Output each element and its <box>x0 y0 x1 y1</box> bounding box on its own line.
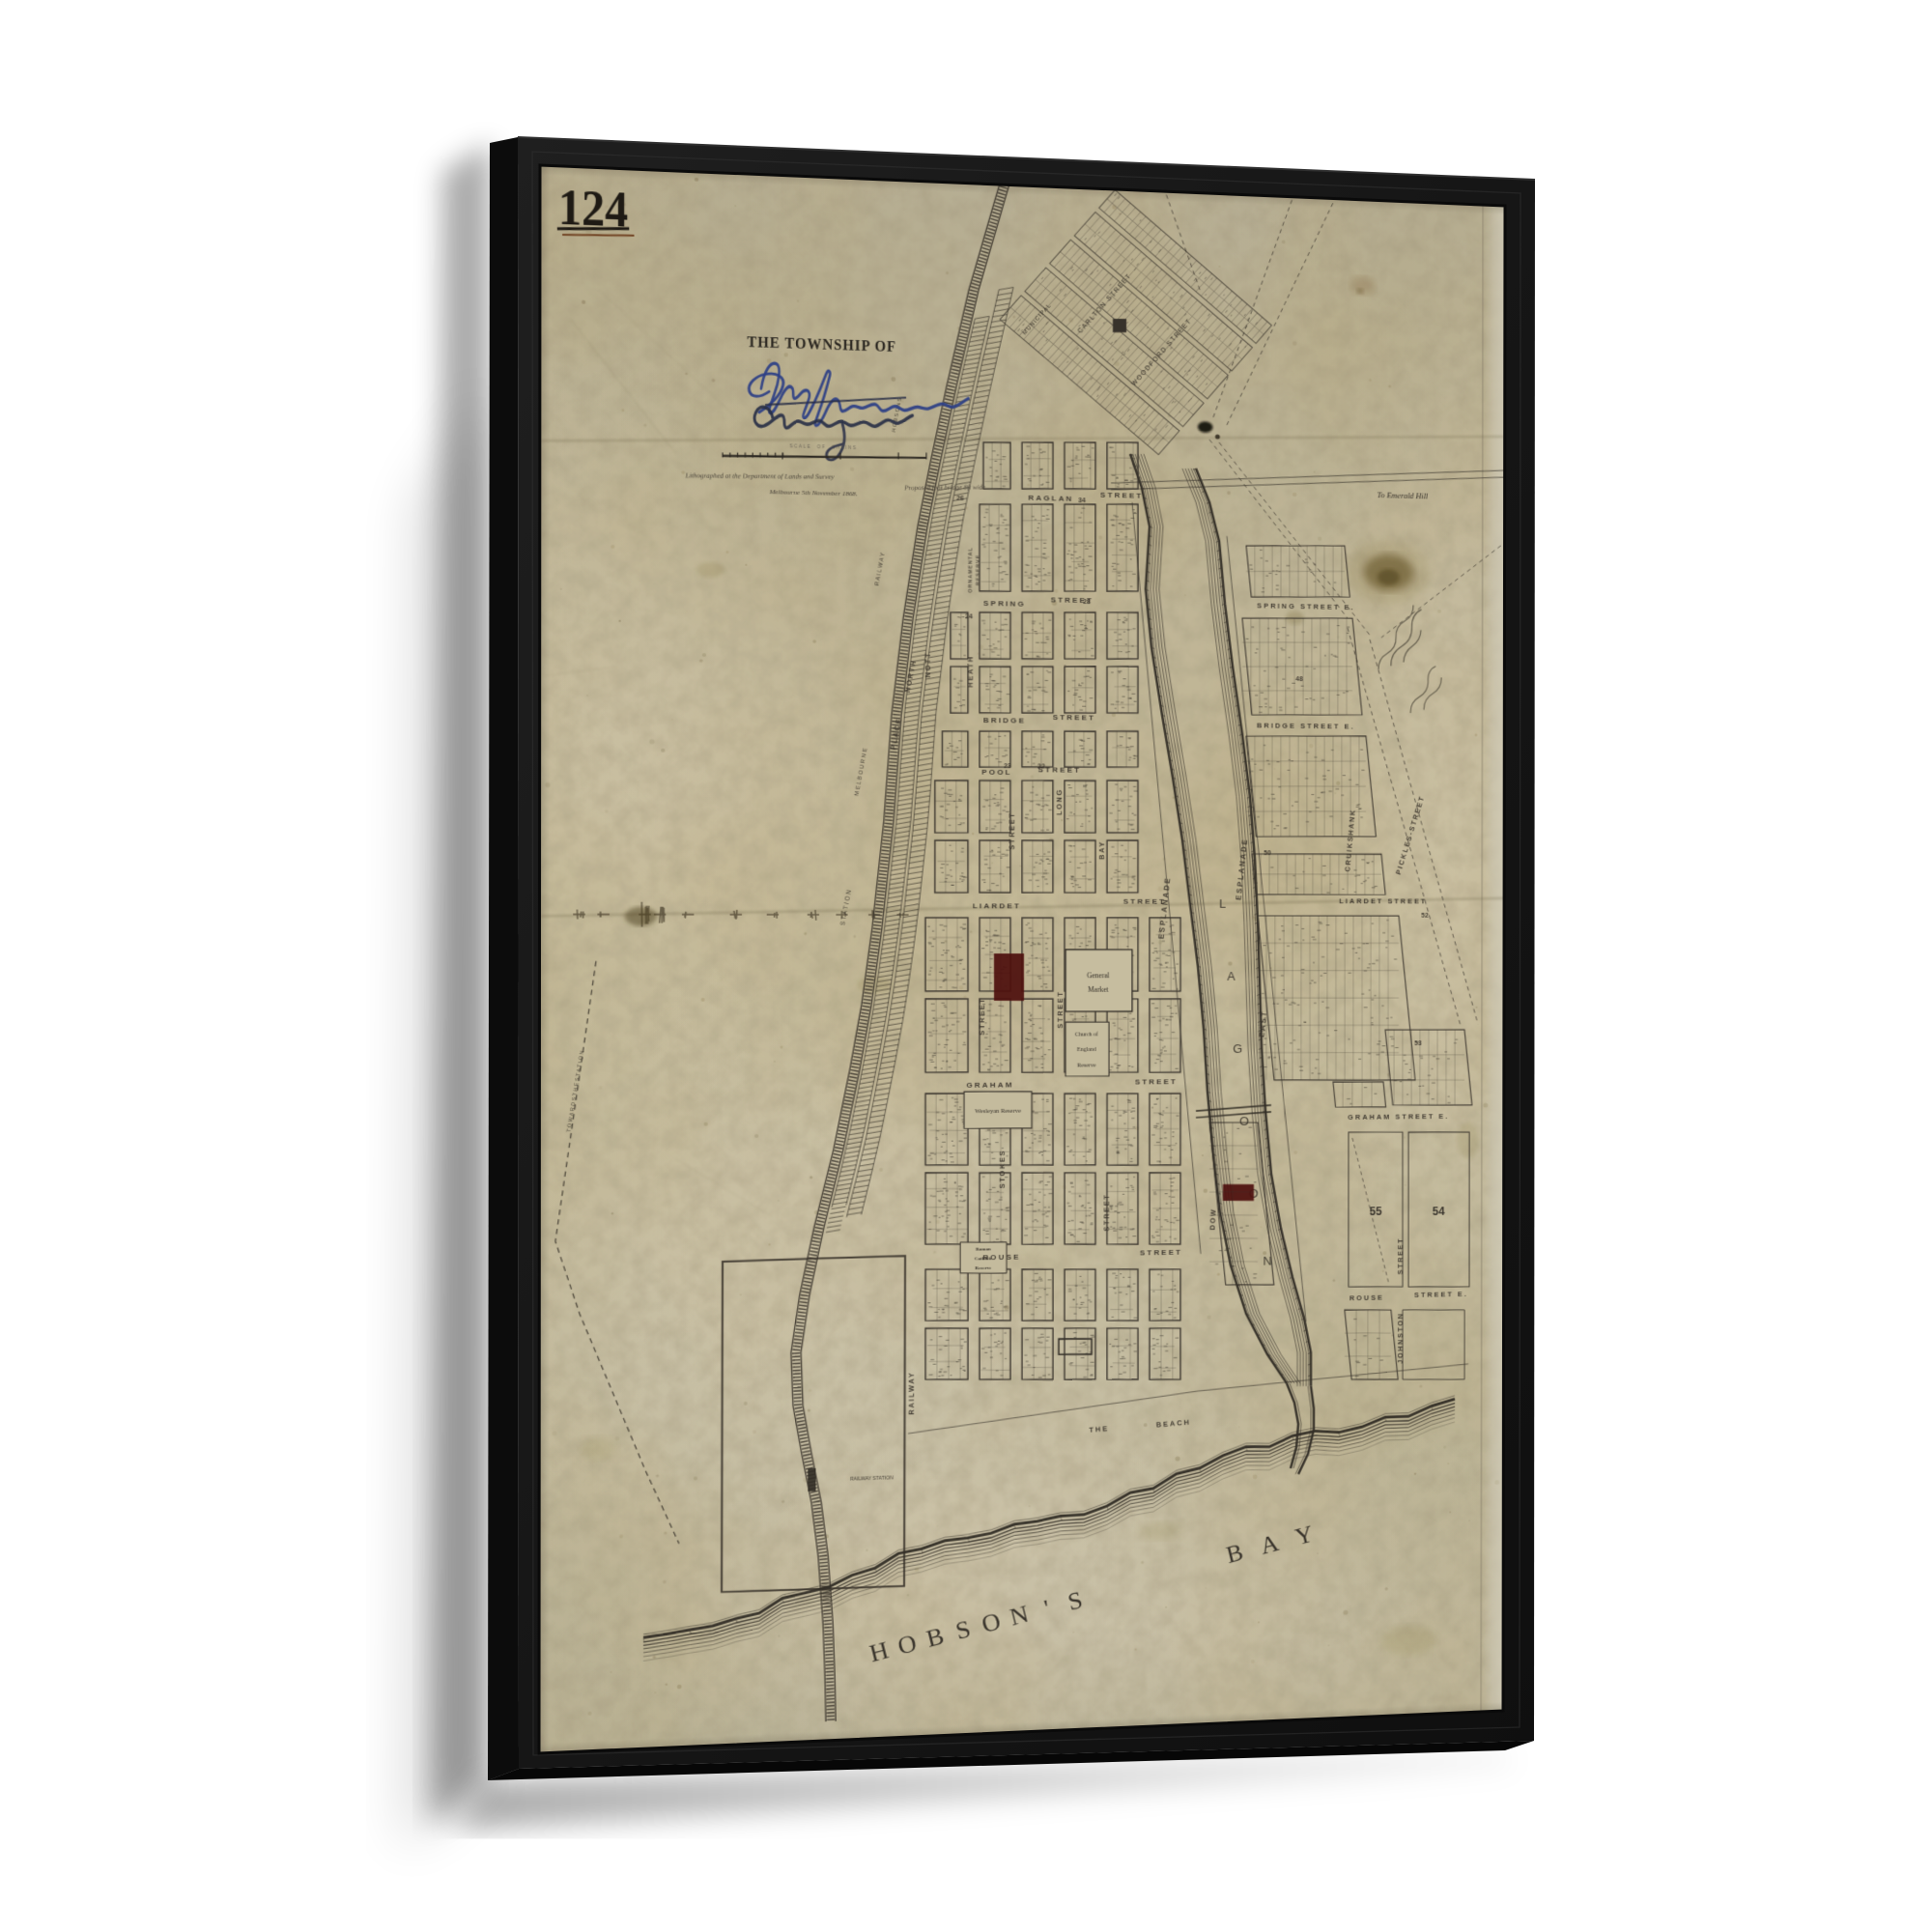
svg-text:DOW: DOW <box>1208 1207 1218 1230</box>
svg-text:53: 53 <box>1414 1039 1421 1047</box>
svg-text:RAILWAY: RAILWAY <box>907 1371 916 1414</box>
svg-text:STREET: STREET <box>1053 712 1095 722</box>
svg-text:Lithographed at the Department: Lithographed at the Department of Lands … <box>684 471 835 481</box>
svg-text:BRIDGE STREET E.: BRIDGE STREET E. <box>1257 722 1355 730</box>
svg-text:Reserve: Reserve <box>1077 1063 1095 1069</box>
svg-text:Roman: Roman <box>976 1247 991 1253</box>
svg-text:STREET: STREET <box>1397 1237 1405 1275</box>
svg-text:52: 52 <box>1421 912 1428 920</box>
svg-text:RESERVE: RESERVE <box>976 554 981 585</box>
svg-text:Wesleyan Reserve: Wesleyan Reserve <box>975 1108 1021 1115</box>
svg-text:STREET: STREET <box>978 997 986 1035</box>
svg-text:ORNAMENTAL: ORNAMENTAL <box>968 547 974 593</box>
svg-text:ROUSE: ROUSE <box>982 1252 1020 1262</box>
svg-text:54: 54 <box>1433 1206 1445 1218</box>
svg-text:A: A <box>1227 970 1236 983</box>
svg-text:STREET.: STREET. <box>1100 490 1147 499</box>
svg-text:SPRING: SPRING <box>983 598 1026 608</box>
svg-text:HEATH: HEATH <box>966 655 975 688</box>
svg-text:L: L <box>1219 897 1226 911</box>
svg-text:22: 22 <box>1037 761 1045 769</box>
svg-text:23: 23 <box>1004 761 1011 769</box>
svg-text:STREET: STREET <box>1056 990 1065 1028</box>
svg-text:LIARDET STREET: LIARDET STREET <box>1339 896 1427 904</box>
svg-text:THE: THE <box>1089 1425 1109 1435</box>
svg-text:STREET: STREET <box>1102 1193 1111 1231</box>
svg-text:STREET: STREET <box>1008 811 1016 849</box>
svg-text:STREET E.: STREET E. <box>1414 1290 1468 1298</box>
svg-text:LIARDET: LIARDET <box>973 900 1021 909</box>
svg-text:STREET: STREET <box>1140 1247 1182 1257</box>
svg-text:STOKES: STOKES <box>998 1150 1007 1189</box>
svg-text:RAGLAN: RAGLAN <box>1028 493 1073 502</box>
svg-text:48: 48 <box>1295 675 1303 683</box>
svg-text:England: England <box>1077 1046 1097 1053</box>
svg-text:General: General <box>1087 972 1110 980</box>
svg-text:O: O <box>1239 1115 1249 1128</box>
svg-text:STREET: STREET <box>1135 1076 1178 1086</box>
svg-text:JOHNSTON: JOHNSTON <box>1397 1312 1405 1363</box>
svg-text:G: G <box>1233 1042 1242 1056</box>
svg-text:NOTT: NOTT <box>923 651 932 677</box>
svg-text:Reserve: Reserve <box>975 1265 992 1271</box>
svg-text:BAY: BAY <box>1097 840 1106 860</box>
svg-text:34: 34 <box>1078 496 1087 504</box>
svg-text:LONG: LONG <box>1055 788 1064 815</box>
svg-text:50: 50 <box>1264 849 1271 857</box>
svg-text:55: 55 <box>1370 1206 1382 1218</box>
svg-text:BRIDGE: BRIDGE <box>983 715 1026 724</box>
svg-text:26: 26 <box>956 494 964 502</box>
svg-text:Proposed foot bridge 8ft wide: Proposed foot bridge 8ft wide <box>903 483 986 492</box>
svg-text:To Emerald Hill: To Emerald Hill <box>1378 491 1429 500</box>
svg-text:24: 24 <box>965 611 974 620</box>
svg-text:GRAHAM STREET E.: GRAHAM STREET E. <box>1348 1112 1449 1121</box>
svg-text:GRAHAM: GRAHAM <box>966 1080 1013 1090</box>
svg-text:ROUSE: ROUSE <box>1350 1293 1384 1302</box>
svg-text:28: 28 <box>1083 597 1091 606</box>
svg-text:Market: Market <box>1088 985 1109 993</box>
svg-text:Church of: Church of <box>1075 1032 1099 1038</box>
